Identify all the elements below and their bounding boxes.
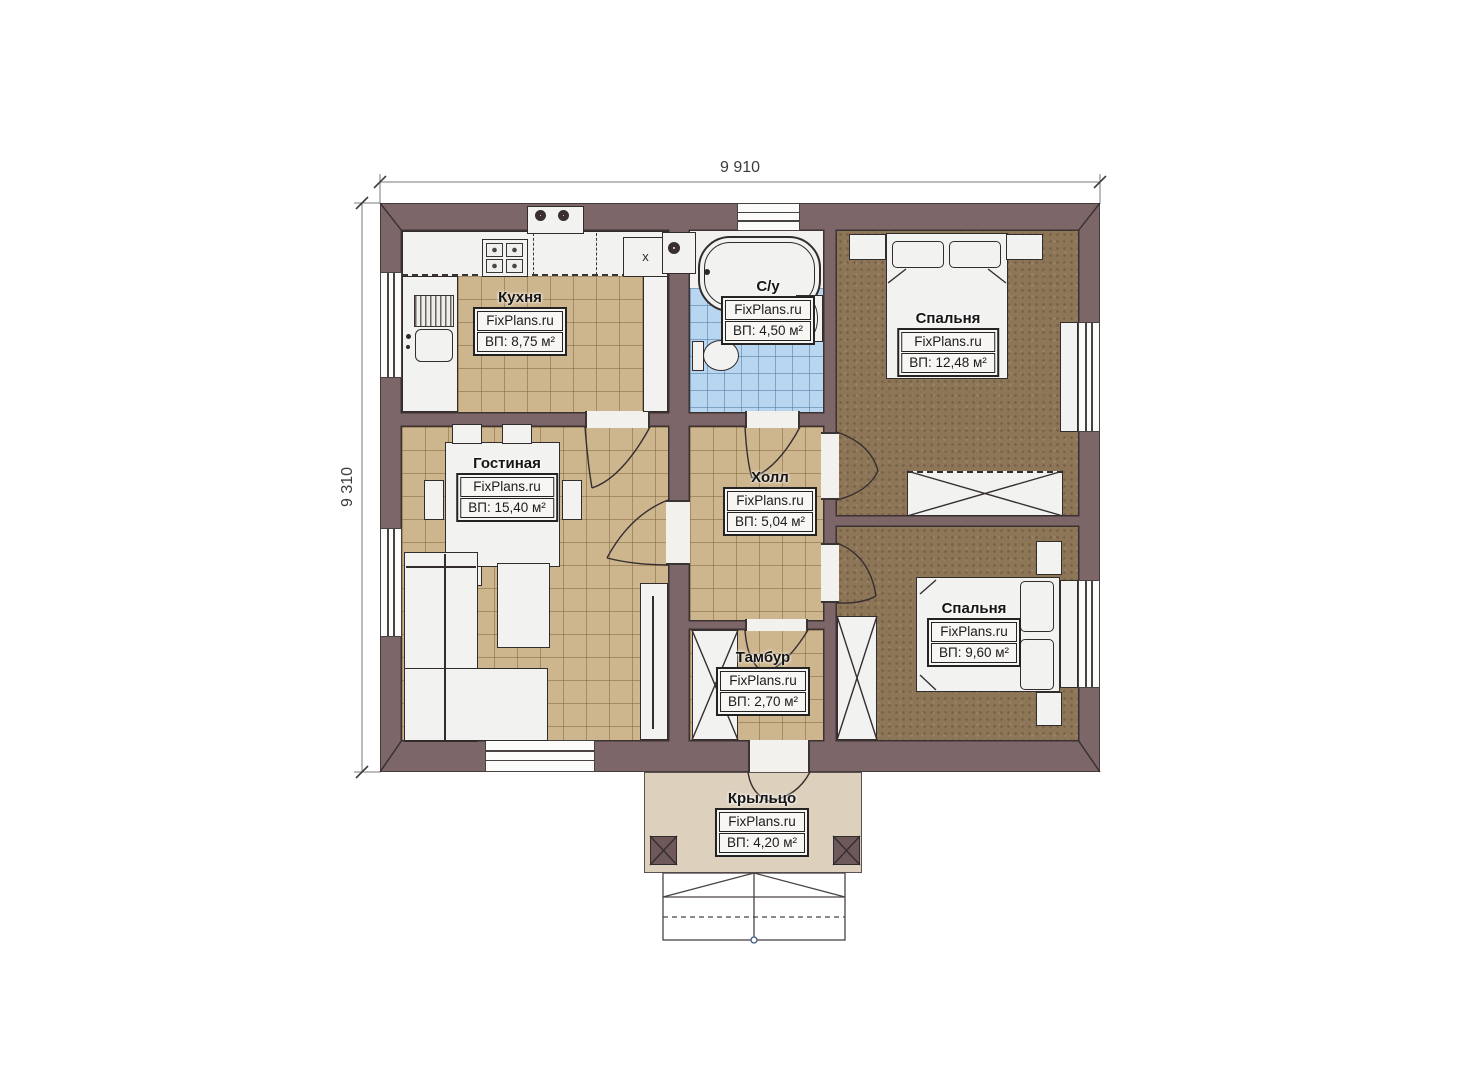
faucet-icon [406,334,411,339]
room-area: ВП: 9,60 м² [931,643,1017,663]
room-area: ВП: 5,04 м² [727,512,813,532]
door-opening [745,411,800,428]
watermark: FixPlans.ru [719,812,805,832]
label-box: FixPlans.ru ВП: 9,60 м² [927,618,1021,667]
door-opening [585,411,650,428]
room-area: ВП: 8,75 м² [477,332,563,352]
pillow-icon [892,241,944,268]
sofa-icon [404,668,548,741]
room-label-bathroom: С/у FixPlans.ru ВП: 4,50 м² [721,279,815,345]
fan-icon [662,232,696,274]
dimension-width-label: 9 910 [720,159,760,177]
sofa-line [406,566,476,568]
stove-icon [482,239,528,277]
room-name: Спальня [942,601,1007,616]
room-name: Гостиная [473,456,541,471]
room-name: Тамбур [736,650,790,665]
watermark: FixPlans.ru [720,671,806,691]
counter-divider [533,233,534,275]
window-sill [1060,580,1078,688]
room-label-living: Гостиная FixPlans.ru ВП: 15,40 м² [456,456,558,522]
steps-icon [663,873,845,943]
room-name: С/у [756,279,779,294]
window-icon [380,272,402,378]
room-area: ВП: 4,20 м² [719,833,805,853]
closet-icon [837,616,877,740]
tv-stand-icon [640,583,668,740]
label-box: FixPlans.ru ВП: 4,20 м² [715,808,809,857]
watermark: FixPlans.ru [725,300,811,320]
pillow-icon [1020,639,1054,690]
room-area: ВП: 12,48 м² [901,353,995,373]
bathtub-faucet-icon [704,269,710,275]
room-name: Холл [751,470,789,485]
room-label-porch: Крыльцо FixPlans.ru ВП: 4,20 м² [715,791,809,857]
pillow-icon [949,241,1001,268]
label-box: FixPlans.ru ВП: 8,75 м² [473,307,567,356]
sink-drainer-icon [414,295,454,327]
room-name: Спальня [916,311,981,326]
sofa-line [444,554,446,740]
wardrobe-icon [907,471,1063,516]
window-icon [380,528,402,637]
label-box: FixPlans.ru ВП: 12,48 м² [897,328,999,377]
door-opening [821,432,839,500]
pillow-icon [1020,581,1054,632]
room-area: ВП: 4,50 м² [725,321,811,341]
room-area: ВП: 15,40 м² [460,498,554,518]
room-label-bedroom-bottom: Спальня FixPlans.ru ВП: 9,60 м² [927,601,1021,667]
nightstand-icon [1036,541,1062,575]
porch-column-icon [650,836,677,865]
kitchen-tall-cabinet [643,276,668,412]
porch-column-icon [833,836,860,865]
counter-divider [596,233,597,275]
chair-icon [424,480,444,520]
watermark: FixPlans.ru [460,477,554,497]
label-box: FixPlans.ru ВП: 4,50 м² [721,296,815,345]
watermark: FixPlans.ru [477,311,563,331]
room-name: Кухня [498,290,542,305]
watermark: FixPlans.ru [727,491,813,511]
entry-door-opening [748,740,810,772]
room-label-kitchen: Кухня FixPlans.ru ВП: 8,75 м² [473,290,567,356]
window-icon [737,203,800,231]
sink-icon [415,329,453,362]
room-label-hall: Холл FixPlans.ru ВП: 5,04 м² [723,470,817,536]
window-icon [485,740,595,772]
dimension-height-label: 9 310 [339,467,357,507]
window-icon [1078,322,1100,432]
door-opening [821,543,839,603]
faucet-icon [406,345,410,349]
chair-icon [502,424,532,444]
room-name: Крыльцо [728,791,796,806]
room-label-bedroom-top: Спальня FixPlans.ru ВП: 12,48 м² [897,311,999,377]
nightstand-icon [1036,692,1062,726]
door-opening [745,619,808,631]
floor-plan-canvas: 9 910 9 310 x [0,0,1473,1080]
window-sill [1060,322,1078,432]
label-box: FixPlans.ru ВП: 5,04 м² [723,487,817,536]
watermark: FixPlans.ru [931,622,1017,642]
cooktop-vent-icon [527,206,584,234]
room-area: ВП: 2,70 м² [720,692,806,712]
watermark: FixPlans.ru [901,332,995,352]
room-label-vestibule: Тамбур FixPlans.ru ВП: 2,70 м² [716,650,810,716]
label-box: FixPlans.ru ВП: 15,40 м² [456,473,558,522]
chair-icon [562,480,582,520]
door-opening [666,500,690,565]
nightstand-icon [849,234,886,260]
chair-icon [452,424,482,444]
label-box: FixPlans.ru ВП: 2,70 м² [716,667,810,716]
window-icon [1078,580,1100,688]
coffee-table-icon [497,563,550,648]
nightstand-icon [1006,234,1043,260]
